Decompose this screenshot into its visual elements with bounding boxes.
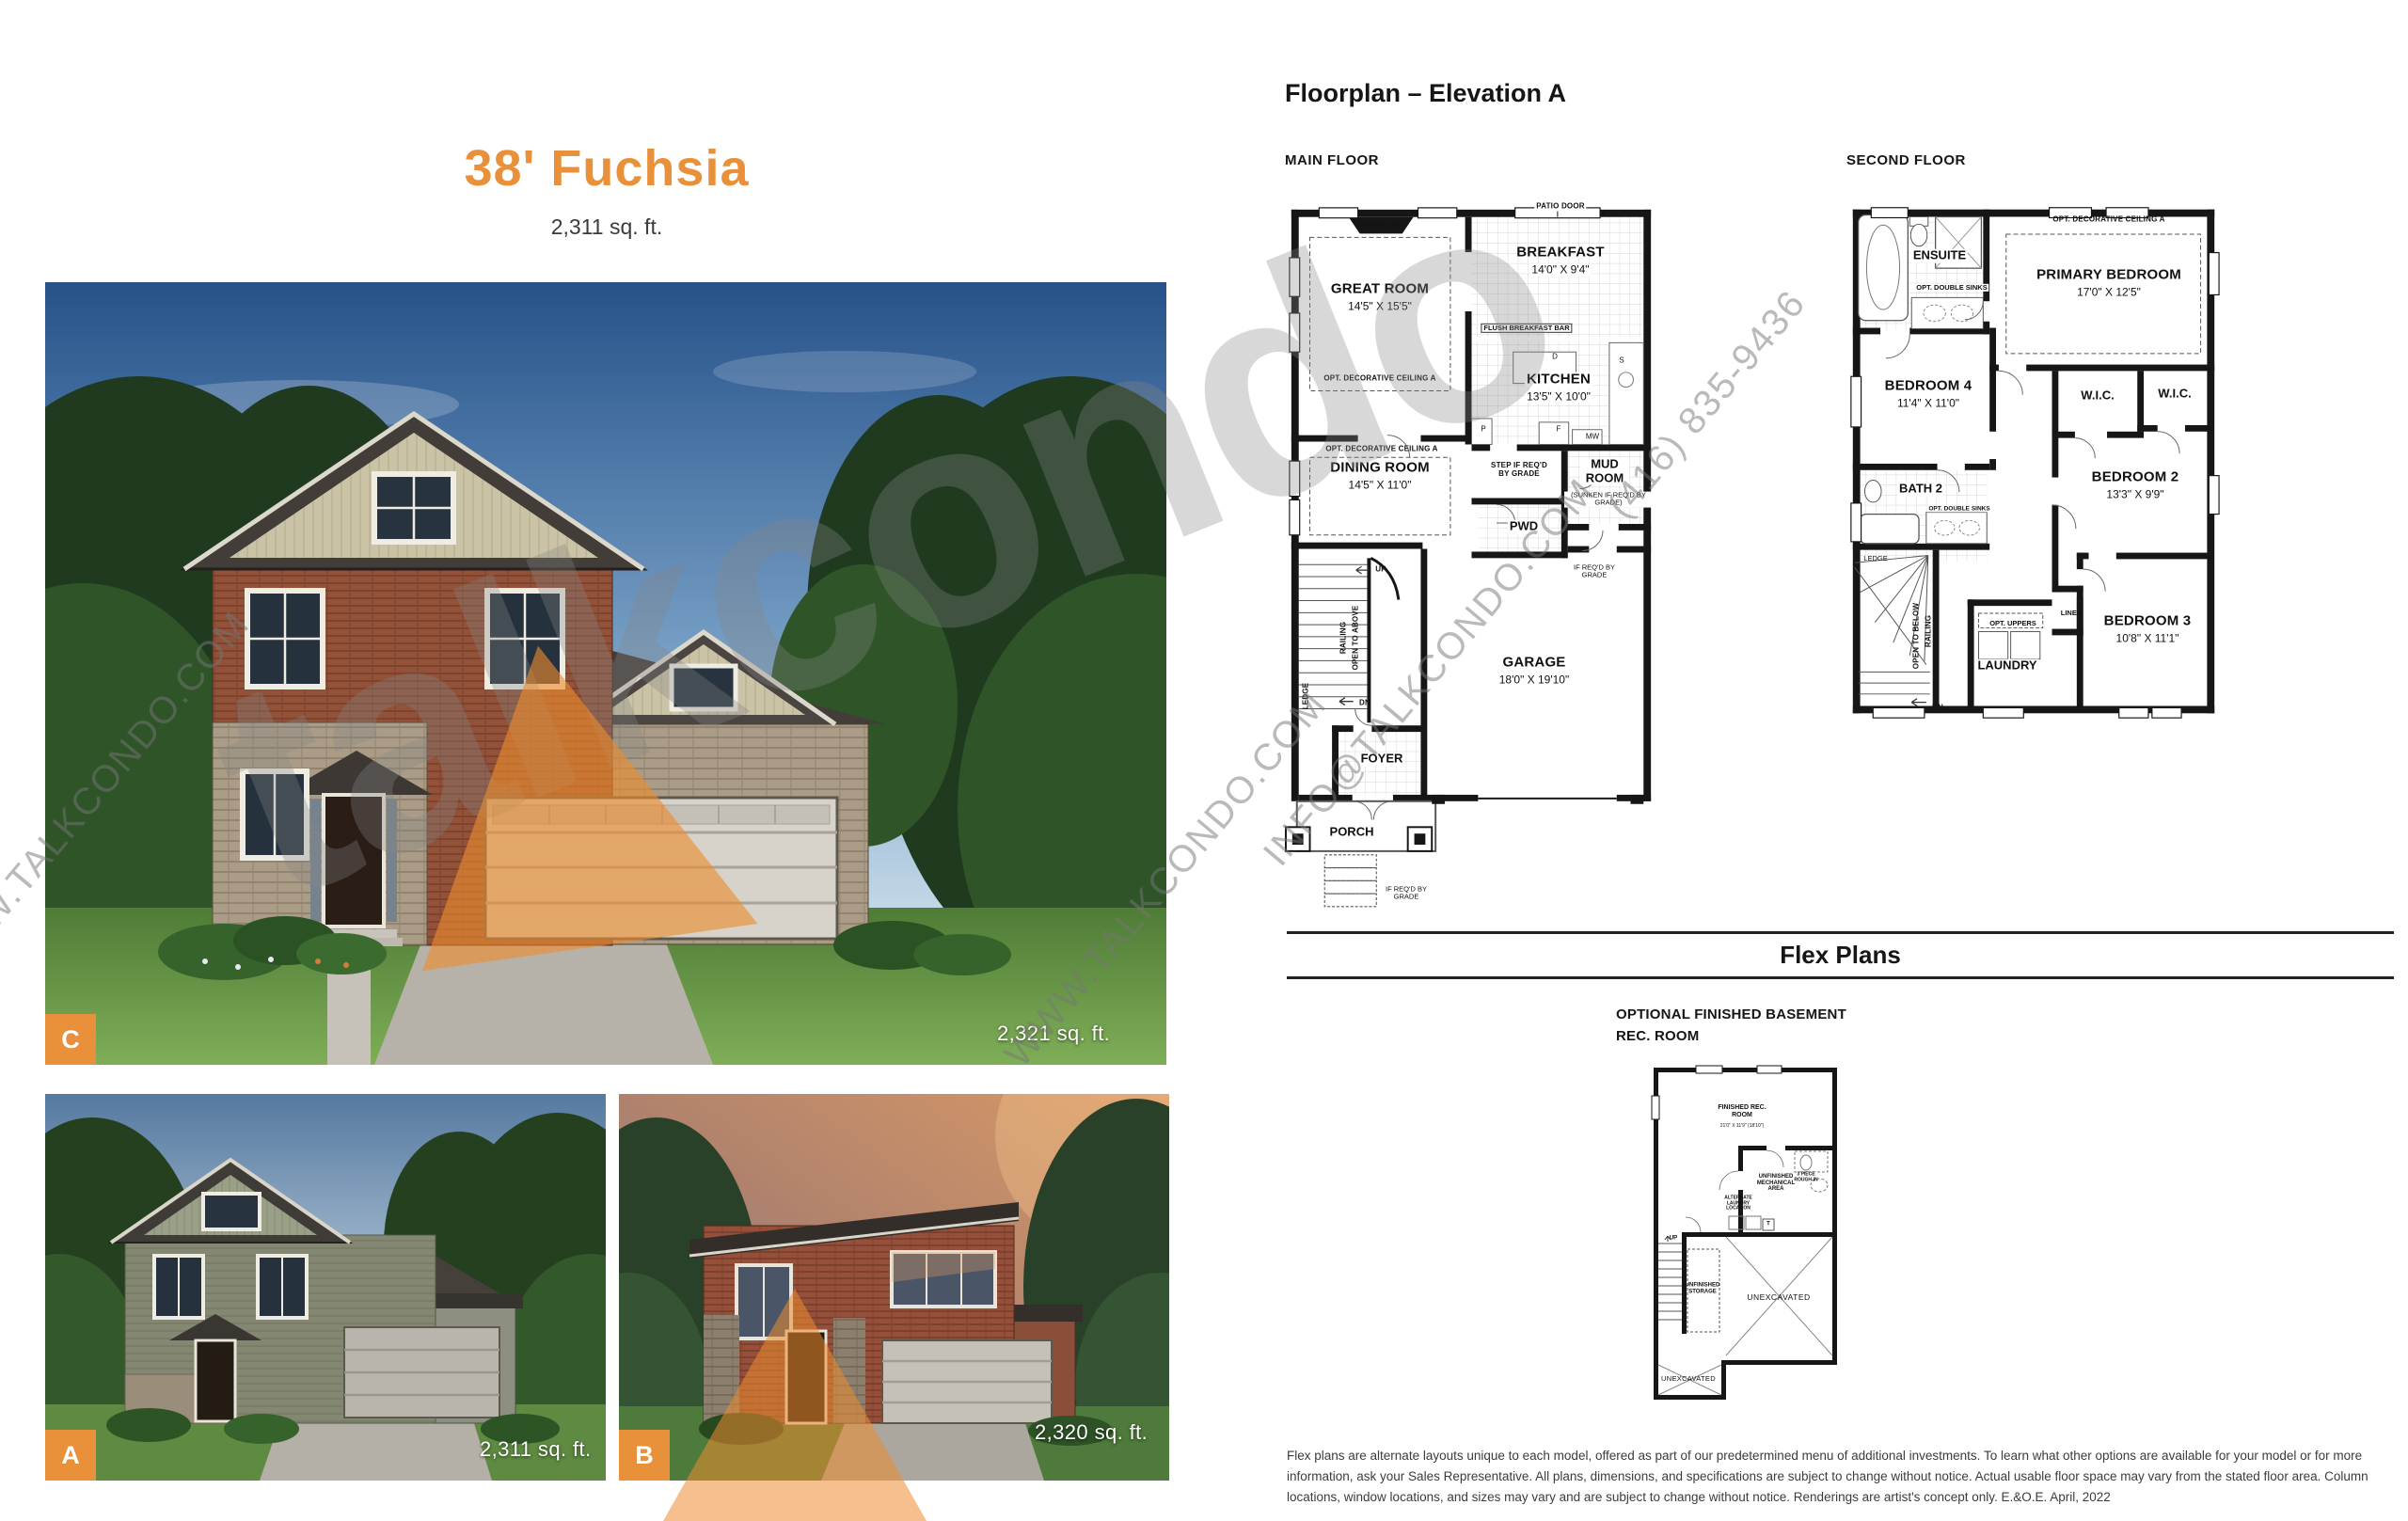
bedroom2-dims: 13'3" X 9'9" (2106, 488, 2163, 500)
storage-label: UNFINISHED STORAGE (1684, 1282, 1721, 1294)
ensuite-label: ENSUITE (1911, 249, 1968, 263)
elevation-b-sqft: 2,320 sq. ft. (1035, 1420, 1148, 1445)
flex-divider-bottom (1287, 976, 2394, 979)
elevation-a-sqft: 2,311 sq. ft. (480, 1437, 592, 1462)
great-room-label: GREAT ROOM (1331, 282, 1429, 298)
bedroom2-label: BEDROOM 2 (2092, 470, 2179, 486)
mud-room-label: MUD ROOM (1580, 457, 1629, 484)
page-title: 38' Fuchsia (325, 139, 889, 198)
great-room-dims: 14'5" X 15'5" (1348, 300, 1412, 312)
wic2-label: W.I.C. (2158, 388, 2191, 402)
ledge-label-2: LEDGE (1863, 555, 1887, 562)
finished-rec-dims: 21'0" X 11'9" (18'10") (1720, 1124, 1764, 1130)
railing-label: RAILING (1340, 622, 1349, 654)
primary-bedroom-dims: 17'0" X 12'5" (2077, 286, 2141, 298)
ledge-label: LEDGE (1303, 683, 1311, 710)
garage-label: GARAGE (1502, 656, 1565, 672)
if-reqd-grade-label-1: IF REQ'D BY GRADE (1567, 564, 1622, 580)
elevation-c-badge: C (45, 1014, 96, 1065)
appliance-d-label: D (1550, 354, 1560, 362)
opt-ceiling-label-2: OPT. DECORATIVE CEILING A (1325, 446, 1437, 454)
patio-door-label: PATIO DOOR (1534, 203, 1586, 212)
dn-label: DN (1359, 700, 1370, 708)
second-floor-label: SECOND FLOOR (1846, 152, 1966, 168)
appliance-mw-label: MW (1584, 434, 1601, 442)
opt-uppers-label: OPT. UPPERS (1988, 620, 2038, 627)
open-to-above-label: OPEN TO ABOVE (1353, 606, 1361, 671)
flex-plans-heading: Flex Plans (1287, 941, 2394, 970)
up-label: UP (1375, 566, 1386, 575)
opt-double-sinks-label-1: OPT. DOUBLE SINKS (1914, 284, 1988, 292)
elevation-c-sqft: 2,321 sq. ft. (997, 1022, 1110, 1046)
railing-label-2: RAILING (1925, 615, 1934, 647)
breakfast-label: BREAKFAST (1516, 246, 1604, 261)
wic1-label: W.I.C. (2081, 389, 2114, 404)
basement-plan: FINISHED REC. ROOM 21'0" X 11'9" (18'10"… (1644, 1063, 1846, 1406)
dining-room-dims: 14'5" X 11'0" (1349, 479, 1412, 491)
elevation-a-badge: A (45, 1430, 96, 1481)
foyer-label: FOYER (1359, 753, 1405, 767)
elevation-c-rendering (45, 282, 1166, 1065)
disclaimer-text: Flex plans are alternate layouts unique … (1287, 1446, 2397, 1508)
finished-rec-label: FINISHED REC. ROOM (1715, 1104, 1769, 1119)
pwd-label: PWD (1508, 520, 1540, 534)
basement-up-label: UP (1670, 1236, 1677, 1243)
alt-laundry-label: ALTERNATE LAUNDRY LOCATION (1722, 1196, 1754, 1212)
appliance-f-label: F (1555, 426, 1563, 435)
unexcavated-label-1: UNEXCAVATED (1747, 1293, 1810, 1303)
porch-label: PORCH (1330, 826, 1374, 840)
dn-label-2: DN (1932, 705, 1943, 713)
laundry-label: LAUNDRY (1975, 659, 2038, 673)
second-floor-plan: ENSUITE OPT. DOUBLE SINKS OPT. DECORATIV… (1846, 196, 2222, 727)
elevation-a-rendering (45, 1094, 606, 1481)
brochure-page: 38' Fuchsia 2,311 sq. ft. (0, 0, 2408, 1521)
kitchen-label: KITCHEN (1525, 372, 1592, 388)
appliance-s-label: S (1617, 357, 1625, 366)
main-floor-label: MAIN FLOOR (1285, 152, 1379, 168)
dining-room-label: DINING ROOM (1330, 461, 1430, 477)
breakfast-dims: 14'0" X 9'4" (1529, 263, 1591, 276)
if-reqd-grade-label-2: IF REQ'D BY GRADE (1379, 886, 1434, 902)
fireplace-label: FIREPLACE (1360, 223, 1402, 231)
step-if-reqd-label: STEP IF REQ'D BY GRADE (1489, 462, 1549, 479)
tank-label: T (1766, 1222, 1770, 1228)
bath2-label: BATH 2 (1897, 483, 1944, 497)
unexcavated-label-2: UNEXCAVATED (1661, 1375, 1716, 1383)
kitchen-dims: 13'5" X 10'0" (1525, 390, 1592, 403)
flush-breakfast-bar-label: FLUSH BREAKFAST BAR (1481, 324, 1572, 333)
appliance-p-label: P (1479, 426, 1487, 435)
opt-ceiling-label-1: OPT. DECORATIVE CEILING A (1323, 375, 1435, 384)
page-subtitle: 2,311 sq. ft. (325, 214, 889, 240)
bedroom3-label: BEDROOM 3 (2104, 614, 2192, 630)
opt-ceiling-label-3: OPT. DECORATIVE CEILING A (2052, 216, 2164, 225)
elevation-a-art (45, 1094, 606, 1481)
flex-divider-top (1287, 931, 2394, 934)
basement-caption: OPTIONAL FINISHED BASEMENT REC. ROOM (1616, 1005, 1851, 1047)
garage-dims: 18'0" X 19'10" (1499, 673, 1570, 686)
linen-label: LINEN (2061, 610, 2083, 617)
primary-bedroom-label: PRIMARY BEDROOM (2036, 268, 2181, 284)
elevation-b-badge: B (619, 1430, 670, 1481)
open-to-below-label: OPEN TO BELOW (1913, 603, 1922, 669)
bedroom3-dims: 10'8" X 11'1" (2116, 632, 2179, 644)
bedroom4-dims: 11'4" X 11'0" (1897, 397, 1959, 409)
floorplan-heading: Floorplan – Elevation A (1285, 79, 1566, 108)
elevation-c-art (45, 282, 1166, 1065)
mud-room-note: (SUNKEN IF REQ'D BY GRADE) (1564, 492, 1653, 508)
main-floor-plan: FIREPLACE GREAT ROOM 14'5" X 15'5" OPT. … (1284, 196, 1658, 958)
mechanical-label: UNFINISHED MECHANICAL AREA (1755, 1174, 1797, 1193)
bedroom4-label: BEDROOM 4 (1885, 379, 1972, 395)
rough-in-label: 3 PIECE ROUGH-IN (1793, 1172, 1819, 1182)
opt-double-sinks-label-2: OPT. DOUBLE SINKS (1926, 505, 1991, 512)
